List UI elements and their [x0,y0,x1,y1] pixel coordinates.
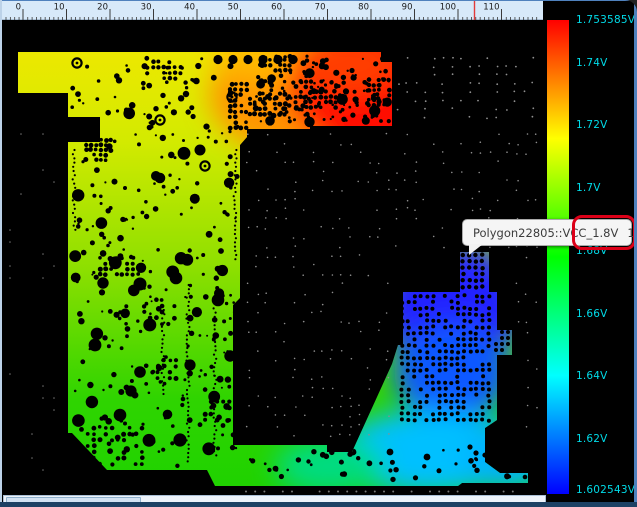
colorbar-tick-label: 1.753585V [576,14,635,26]
ruler-label: 10 [54,3,65,13]
colorbar-tick-label: 1.64V [576,370,608,382]
colorbar-tick-label: 1.62V [576,433,608,445]
ruler-label: 90 [402,3,413,13]
colorbar-tick-label: 1.602543V [576,484,635,496]
ruler-label: 20 [97,3,108,13]
red-highlight-annotation [572,215,636,250]
colorbar-tick-label: 1.66V [576,308,608,320]
colorbar-tick-label: 1.72V [576,119,608,131]
colorbar-tick-label: 1.74V [576,57,608,69]
window-border-left [0,0,2,507]
board-canvas[interactable] [2,20,634,496]
colorbar-tick-label: 1.7V [576,182,601,194]
ruler-label: 80 [358,3,369,13]
ruler-label: 70 [315,3,326,13]
horizontal-ruler: 0102030405060708090100110 [2,1,543,20]
ruler-label: 40 [184,3,195,13]
ruler-label: 60 [271,3,282,13]
ruler-label: 100 [440,3,456,13]
ruler-label: 50 [228,3,239,13]
window-border-bottom [0,502,637,507]
ruler-label: 0 [16,3,21,13]
ruler-label: 110 [483,3,499,13]
pcb-voltage-viewer-window: 0102030405060708090100110 1.753585V1.74V… [0,0,637,507]
window-border-top [0,0,637,1]
tooltip-pointer [469,244,483,255]
ruler-label: 30 [141,3,152,13]
pcb-voltage-heatmap [2,20,634,496]
voltage-colorbar [547,20,569,494]
